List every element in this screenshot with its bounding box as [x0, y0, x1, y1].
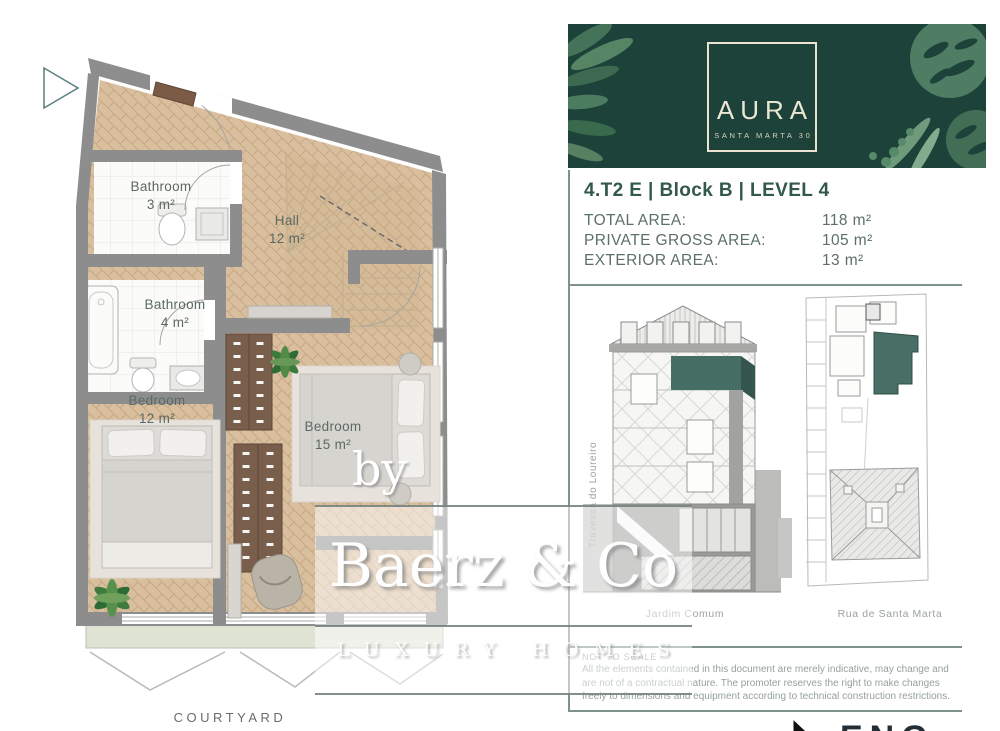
area-row-exterior: EXTERIOR AREA: 13 m²	[584, 252, 964, 270]
highlighted-unit-elevation	[671, 356, 741, 390]
room-label-bathroom-small: Bathroom 3 m²	[116, 178, 206, 213]
area-label: PRIVATE GROSS AREA:	[584, 232, 766, 249]
room-name: Bathroom	[131, 179, 192, 194]
divider-under-areas	[568, 284, 962, 286]
room-name: Bathroom	[145, 297, 206, 312]
watermark-by: by	[352, 442, 407, 496]
brand-banner: AURA SANTA MARTA 30	[568, 24, 986, 168]
room-name: Bedroom	[129, 393, 186, 408]
watermark-divider	[315, 625, 692, 627]
area-value: 13 m²	[822, 252, 864, 270]
room-area: 12 m²	[112, 410, 202, 428]
monstera-leaves-icon	[869, 24, 986, 168]
room-name: Bedroom	[305, 419, 362, 434]
brochure-page: Bathroom 3 m² Bathroom 4 m² Hall 12 m² B…	[0, 0, 1000, 731]
room-area: 3 m²	[116, 196, 206, 214]
area-value: 118 m²	[822, 212, 872, 230]
area-label: TOTAL AREA:	[584, 212, 686, 229]
brand-name: AURA	[711, 95, 813, 126]
street-label-right: Rua de Santa Marta	[800, 608, 980, 620]
room-label-hall: Hall 12 m²	[242, 212, 332, 247]
palm-leaves-icon	[568, 24, 636, 165]
courtyard-label: COURTYARD	[140, 710, 320, 725]
area-row-private: PRIVATE GROSS AREA: 105 m²	[584, 232, 964, 250]
area-label: EXTERIOR AREA:	[584, 252, 719, 269]
divider-below-disclaimer	[568, 710, 962, 712]
watermark-tagline: LUXURY HOMES	[322, 639, 685, 661]
area-row-total: TOTAL AREA: 118 m²	[584, 212, 964, 230]
brand-logo-frame: AURA SANTA MARTA 30	[707, 42, 817, 152]
bed-small	[90, 420, 220, 578]
highlighted-unit-siteplan	[874, 332, 918, 394]
watermark-brand: Baerz & Co	[329, 507, 678, 625]
area-value: 105 m²	[822, 232, 873, 250]
room-area: 12 m²	[242, 230, 332, 248]
room-name: Hall	[275, 213, 299, 228]
mouse-cursor-icon	[792, 718, 818, 731]
plant-hall	[269, 346, 301, 378]
watermark-band: Baerz & Co LUXURY HOMES	[315, 505, 692, 695]
room-area: 4 m²	[130, 314, 220, 332]
orientation-triangle-icon	[44, 68, 78, 108]
room-label-bedroom-small: Bedroom 12 m²	[112, 392, 202, 427]
brand-subtitle: SANTA MARTA 30	[712, 131, 813, 140]
partial-agency-logo: ENG	[840, 719, 935, 731]
site-plan-drawing	[778, 288, 988, 606]
room-label-bathroom-large: Bathroom 4 m²	[130, 296, 220, 331]
unit-title: 4.T2 E | Block B | LEVEL 4	[584, 180, 964, 202]
